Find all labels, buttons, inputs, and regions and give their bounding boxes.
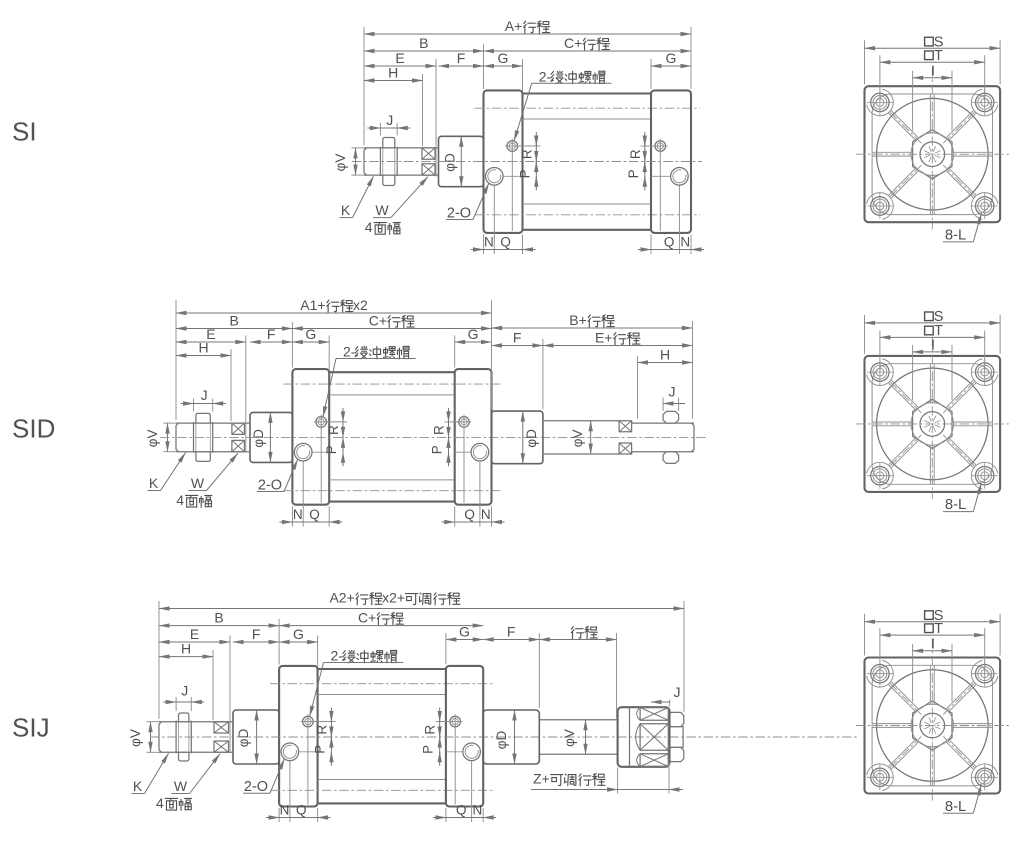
svg-text:P: P [421,745,436,754]
svg-text:W: W [174,778,188,794]
svg-text:T: T [934,621,943,637]
svg-text:A2+: A2+ [329,590,354,606]
svg-text:R: R [314,725,329,735]
svg-text:2-O: 2-O [258,477,282,493]
svg-text:Q: Q [500,235,511,250]
svg-text:J: J [181,683,188,699]
svg-text:φV: φV [562,729,577,747]
svg-text:H: H [198,339,208,355]
svg-text:K: K [149,475,159,491]
svg-text:G: G [305,326,316,342]
svg-text:Q: Q [664,235,675,250]
svg-text:R: R [326,425,341,435]
svg-text:W: W [375,202,389,218]
svg-text:G: G [468,326,479,342]
svg-text:R: R [628,149,643,159]
svg-text:B: B [419,35,428,51]
svg-text:B: B [230,312,239,328]
svg-text:E+: E+ [595,329,613,345]
svg-text:φD: φD [236,729,251,748]
svg-text:A+: A+ [505,18,523,34]
svg-text:P: P [312,745,327,754]
svg-text:B: B [214,609,223,625]
svg-text:8-L: 8-L [945,228,966,244]
svg-text:8-L: 8-L [945,497,966,513]
svg-text:2-O: 2-O [244,779,268,795]
svg-text:SID: SID [12,414,55,444]
svg-text:SIJ: SIJ [12,713,50,743]
svg-text:I: I [931,63,935,79]
svg-text:F: F [267,326,276,342]
svg-text:G: G [498,50,509,66]
svg-text:K: K [341,202,351,218]
svg-text:B+: B+ [569,312,587,328]
svg-text:H: H [660,346,670,362]
svg-text:J: J [669,384,676,400]
svg-text:φD: φD [251,429,266,448]
svg-text:C+: C+ [369,312,387,328]
svg-text:N: N [293,507,303,522]
svg-text:T: T [934,48,943,64]
svg-text:Q: Q [296,803,307,818]
svg-text:J: J [201,387,208,403]
svg-text:2-: 2- [343,344,356,360]
svg-text:x2: x2 [353,297,368,313]
svg-text:N: N [680,235,690,250]
svg-text:A1+: A1+ [300,297,325,313]
svg-text:φD: φD [443,153,458,172]
svg-text:F: F [252,626,261,642]
svg-text:φV: φV [570,430,585,448]
svg-text:G: G [666,50,677,66]
svg-text:G: G [459,623,470,639]
svg-text:R: R [519,149,534,159]
svg-text:P: P [626,169,641,178]
svg-text:J: J [386,112,393,128]
svg-text:I: I [931,338,935,354]
svg-text:P: P [324,445,339,454]
svg-text:I: I [931,636,935,652]
svg-text:R: R [423,725,438,735]
svg-text:φD: φD [524,429,539,448]
svg-text:F: F [457,50,466,66]
svg-text:R: R [432,425,447,435]
svg-text:φD: φD [494,731,509,750]
svg-text:C+: C+ [358,609,376,625]
svg-text:F: F [507,623,516,639]
svg-text:N: N [481,507,491,522]
svg-text:Q: Q [456,803,467,818]
svg-text:H: H [388,64,398,80]
svg-text:2-: 2- [331,648,344,664]
svg-text:Q: Q [309,507,320,522]
svg-text:N: N [473,803,483,818]
svg-text:φV: φV [333,154,348,172]
svg-text:T: T [934,323,943,339]
svg-text:P: P [517,169,532,178]
svg-text:P: P [430,445,445,454]
svg-text:4: 4 [156,795,164,811]
svg-text:W: W [191,475,205,491]
svg-text:φV: φV [145,430,160,448]
svg-text:H: H [181,640,191,656]
svg-text:E: E [190,626,199,642]
svg-text:Q: Q [464,507,475,522]
svg-text:J: J [674,684,681,700]
svg-text:K: K [133,778,143,794]
svg-text:SI: SI [12,117,37,147]
svg-text:G: G [293,626,304,642]
svg-text:2-O: 2-O [447,205,471,221]
svg-text:φV: φV [128,729,143,747]
svg-text:F: F [513,329,522,345]
svg-text:Z+: Z+ [533,771,550,787]
svg-text:4: 4 [176,492,184,508]
svg-text:4: 4 [365,219,373,235]
svg-text:2-: 2- [539,68,552,84]
svg-text:8-L: 8-L [945,799,966,815]
svg-text:C+: C+ [564,35,582,51]
svg-text:N: N [484,235,494,250]
svg-text:N: N [280,803,290,818]
svg-text:x2+: x2+ [382,590,405,606]
